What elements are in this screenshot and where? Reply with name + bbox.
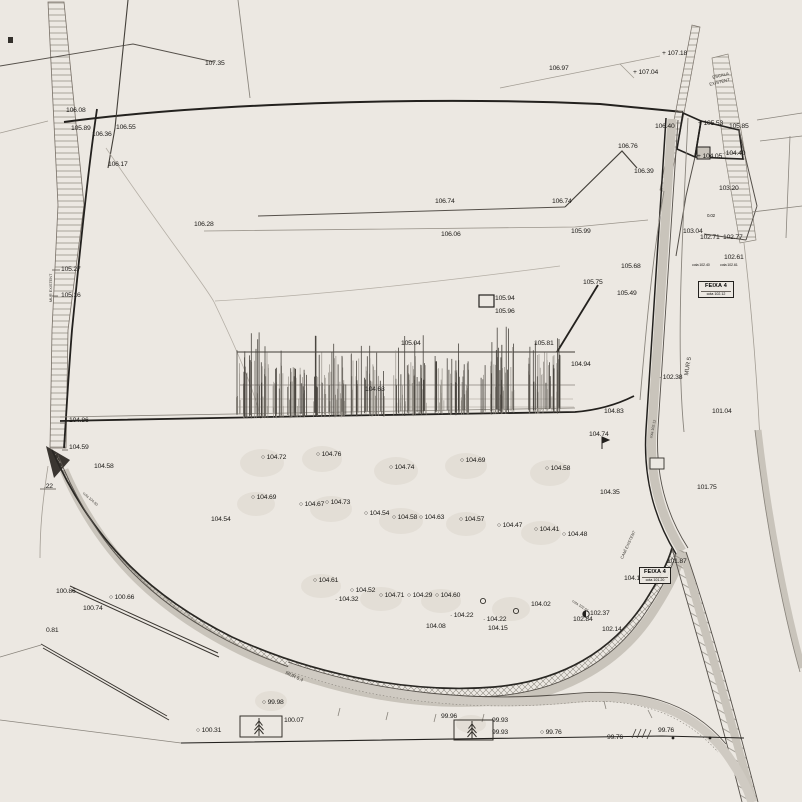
elevation-label: + 107.04	[633, 70, 658, 77]
elevation-label: 106.74	[552, 199, 572, 206]
elevation-label: 106.74	[435, 199, 455, 206]
elevation-label: 101.87	[667, 559, 687, 566]
elevation-label: ○ 104.58	[392, 515, 417, 522]
elevation-label: 106.36	[92, 132, 112, 139]
elevation-label: 105.16	[61, 293, 81, 300]
elevation-label: 99.93	[492, 718, 508, 725]
rotated-annotation: cota 102.12	[650, 420, 657, 439]
elevation-label: · 104.32	[335, 597, 358, 604]
elevation-label: 106.55	[116, 125, 136, 132]
elevation-label: 102.61	[724, 255, 744, 262]
elevation-label: 99.76	[658, 728, 674, 735]
elevation-label: 103.20	[719, 186, 739, 193]
elevation-label: 0.02	[707, 214, 715, 219]
cota-annotation: cota 102.40	[692, 264, 710, 268]
elevation-label: ○ 104.73	[325, 500, 350, 507]
elevation-label: 99.93	[492, 730, 508, 737]
elevation-label: 104.58	[94, 464, 114, 471]
elevation-label: ○ 104.57	[459, 517, 484, 524]
elevation-label: 99.76	[607, 735, 623, 742]
elevation-label: + 104.05	[697, 154, 722, 161]
elevation-label: 100.07	[284, 718, 304, 725]
elevation-label: 101.04	[712, 409, 732, 416]
elevation-label: 105.89	[71, 126, 91, 133]
elevation-label: 105.49	[617, 291, 637, 298]
elevation-label: 106.28	[194, 222, 214, 229]
elevation-label: 104.63	[365, 387, 385, 394]
elevation-label: 104.86	[69, 418, 89, 425]
elevation-label: 104.54	[211, 517, 231, 524]
elevation-label: 105.75	[583, 280, 603, 287]
rotated-annotation: cota 102.61	[571, 600, 589, 613]
elevation-label: · 104.22	[450, 613, 473, 620]
elevation-label: 102.14	[602, 627, 622, 634]
rotated-annotation: MUR 5	[684, 357, 693, 376]
elevation-label: .22	[44, 484, 53, 491]
elevation-label: 0.81	[46, 628, 58, 635]
elevation-label: 106.97	[549, 66, 569, 73]
elevation-label: 107.35	[205, 61, 225, 68]
elevation-label: 102.71	[700, 235, 720, 242]
feixa-box-title: FEIXA 4	[701, 283, 731, 290]
rotated-annotation: MUR EXISTENT	[50, 274, 54, 302]
elevation-label: 106.39	[634, 169, 654, 176]
feixa-4-label-box: FEIXA 4cota 102.12	[698, 281, 734, 298]
elevation-label: ○ 104.76	[316, 452, 341, 459]
rotated-annotation: MUR 5.4	[284, 672, 303, 684]
elevation-label: 105.68	[621, 264, 641, 271]
elevation-label: 105.04	[401, 341, 421, 348]
elevation-label: ○ 104.29	[407, 593, 432, 600]
elevation-label: 106.06	[441, 232, 461, 239]
elevation-label: ○ 100.31	[196, 728, 221, 735]
elevation-label: + 105.53	[698, 121, 723, 128]
elevation-label: 104.08	[426, 624, 446, 631]
elevation-label: 104.74	[589, 432, 609, 439]
elevation-label: 106.17	[108, 162, 128, 169]
elevation-label: 104.35	[600, 490, 620, 497]
elevation-label: 106.76	[618, 144, 638, 151]
cota-annotation: cota 102.61	[720, 264, 738, 268]
elevation-label: · 102.38	[659, 375, 682, 382]
elevation-label: ○ 104.69	[460, 458, 485, 465]
elevation-label: ○ 104.61	[313, 578, 338, 585]
feixa-box-cota: cota 101.20	[642, 577, 668, 583]
elevation-label: 104.59	[69, 445, 89, 452]
elevation-label: 105.94	[495, 296, 515, 303]
elevation-label: ○ 104.41	[534, 527, 559, 534]
elevation-label: 102.84	[573, 617, 593, 624]
elevation-label: 99.96	[441, 714, 457, 721]
elevation-label: 102.77	[723, 235, 743, 242]
elevation-label: 105.99	[571, 229, 591, 236]
elevation-label: ○ 104.67	[299, 502, 324, 509]
feixa-box-title: FEIXA 4	[642, 569, 668, 576]
elevation-label: 106.08	[66, 108, 86, 115]
elevation-label: 104.94	[571, 362, 591, 369]
elevation-label: ○ 104.54	[364, 511, 389, 518]
elevation-label: ○ 104.69	[251, 495, 276, 502]
rotated-annotation: cota 104.50	[82, 492, 98, 507]
elevation-label: ○ 104.52	[350, 588, 375, 595]
elevation-label: 105.85	[729, 124, 749, 131]
rotated-annotation: CAMÍ EXISTENT	[620, 530, 637, 559]
elevation-label: 101.75	[697, 485, 717, 492]
elevation-label: ○ 104.60	[435, 593, 460, 600]
elevation-label: ○ 104.72	[261, 455, 286, 462]
elevation-label: 100.74	[83, 606, 103, 613]
topographic-site-plan: 107.35106.97+ 107.04+ 107.18106.08+ 105.…	[0, 0, 802, 802]
elevation-label: 105.81	[534, 341, 554, 348]
elevation-label: 105.27	[61, 267, 81, 274]
elevation-label: ○ 104.63	[419, 515, 444, 522]
elevation-label: 104.83	[604, 409, 624, 416]
elevation-label: 105.96	[495, 309, 515, 316]
elevation-label: 104.15	[488, 626, 508, 633]
elevation-label: ○ 104.58	[545, 466, 570, 473]
elevation-label: 100.86	[56, 589, 76, 596]
elevation-label: · 104.40	[722, 151, 745, 158]
annotation-layer: 107.35106.97+ 107.04+ 107.18106.08+ 105.…	[0, 0, 802, 802]
feixa-box-cota: cota 102.12	[701, 291, 731, 297]
elevation-label: 104.02	[531, 602, 551, 609]
elevation-label: ○ 104.47	[497, 523, 522, 530]
elevation-label: · 104.22	[483, 617, 506, 624]
elevation-label: ○ 100.66	[109, 595, 134, 602]
elevation-label: ○ 104.74	[389, 465, 414, 472]
elevation-label: ○ 104.71	[379, 593, 404, 600]
elevation-label: ○ 104.48	[562, 532, 587, 539]
elevation-label: + 107.18	[662, 51, 687, 58]
feixa-4-label-box: FEIXA 4cota 101.20	[639, 567, 671, 584]
elevation-label: ○ 99.76	[540, 730, 562, 737]
elevation-label: 106.40	[655, 124, 675, 131]
elevation-label: ○ 99.98	[262, 700, 284, 707]
